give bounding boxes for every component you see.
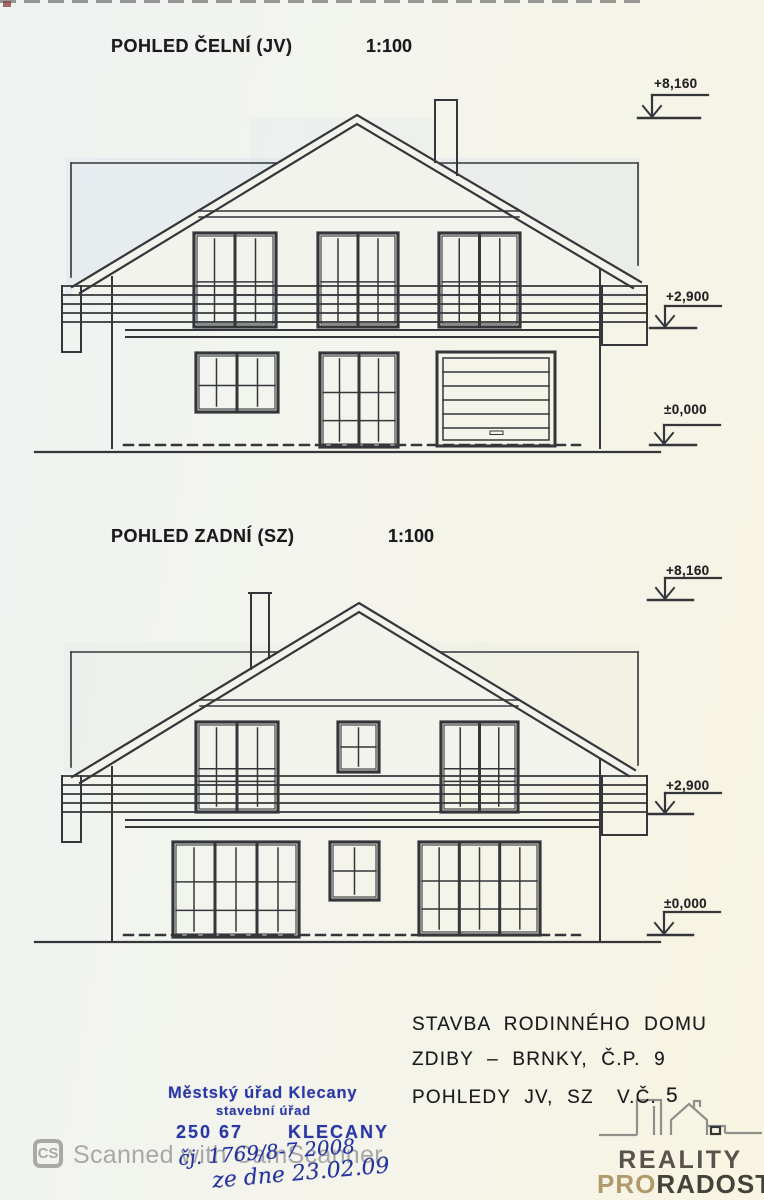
logo-text-pro: PRO — [597, 1169, 656, 1199]
logo-text-radost: RADOST — [656, 1169, 764, 1199]
front-elevation-drawing — [0, 80, 764, 500]
scan-speck-artifact — [3, 1, 11, 7]
camscanner-badge-icon: CS — [33, 1139, 63, 1168]
stamp-office-name: Městský úřad Klecany — [168, 1084, 357, 1103]
view-scale: 1:100 — [388, 526, 434, 547]
level-label-ground: ±0,000 — [664, 896, 707, 911]
logo-text-proradost: PRORADOST — [597, 1172, 764, 1196]
scan-edge-artifact — [0, 0, 640, 3]
project-title-line2: ZDIBY – BRNKY, Č.P. 9 — [412, 1049, 666, 1071]
drawing-number-label: V.Č. — [617, 1087, 657, 1109]
stamp-postal-code: 250 67 — [176, 1122, 243, 1143]
level-label-roof: +8,160 — [666, 563, 709, 578]
rear-elevation-drawing — [0, 565, 764, 965]
reality-proradost-logo: REALITY PRORADOST — [597, 1096, 764, 1200]
view-scale: 1:100 — [366, 36, 412, 57]
drawing-number: 5 — [666, 1084, 679, 1108]
level-label-ground: ±0,000 — [664, 402, 707, 417]
view-title: POHLED ZADNÍ (SZ) — [111, 526, 295, 547]
level-label-floor: +2,900 — [666, 778, 709, 793]
drawing-name: POHLEDY JV, SZ — [412, 1087, 594, 1109]
scanned-drawing-sheet: POHLED ČELNÍ (JV) 1:100 +8,160 +2,900 ±0… — [0, 0, 764, 1200]
stamp-department: stavební úřad — [216, 1103, 311, 1118]
project-title-line1: STAVBA RODINNÉHO DOMU — [412, 1014, 707, 1036]
level-label-floor: +2,900 — [666, 289, 709, 304]
view-title: POHLED ČELNÍ (JV) — [111, 36, 293, 57]
level-label-roof: +8,160 — [654, 76, 697, 91]
